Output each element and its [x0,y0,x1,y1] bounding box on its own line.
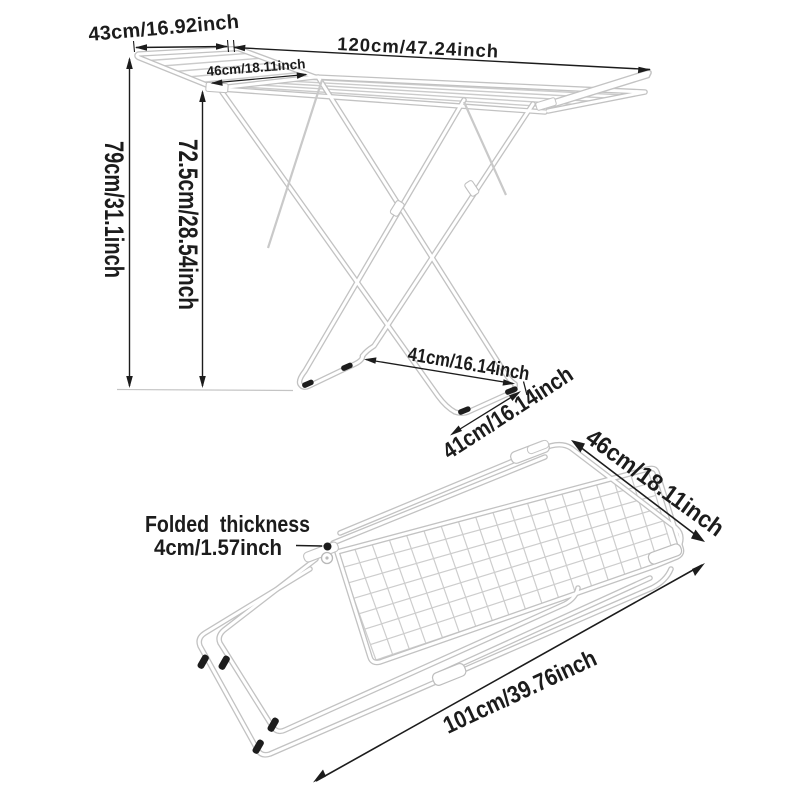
svg-text:4cm/1.57inch: 4cm/1.57inch [154,535,282,560]
svg-text:Folded thickness: Folded thickness [145,511,310,537]
svg-text:72.5cm/28.54inch: 72.5cm/28.54inch [173,139,203,310]
svg-text:79cm/31.1inch: 79cm/31.1inch [99,141,129,278]
